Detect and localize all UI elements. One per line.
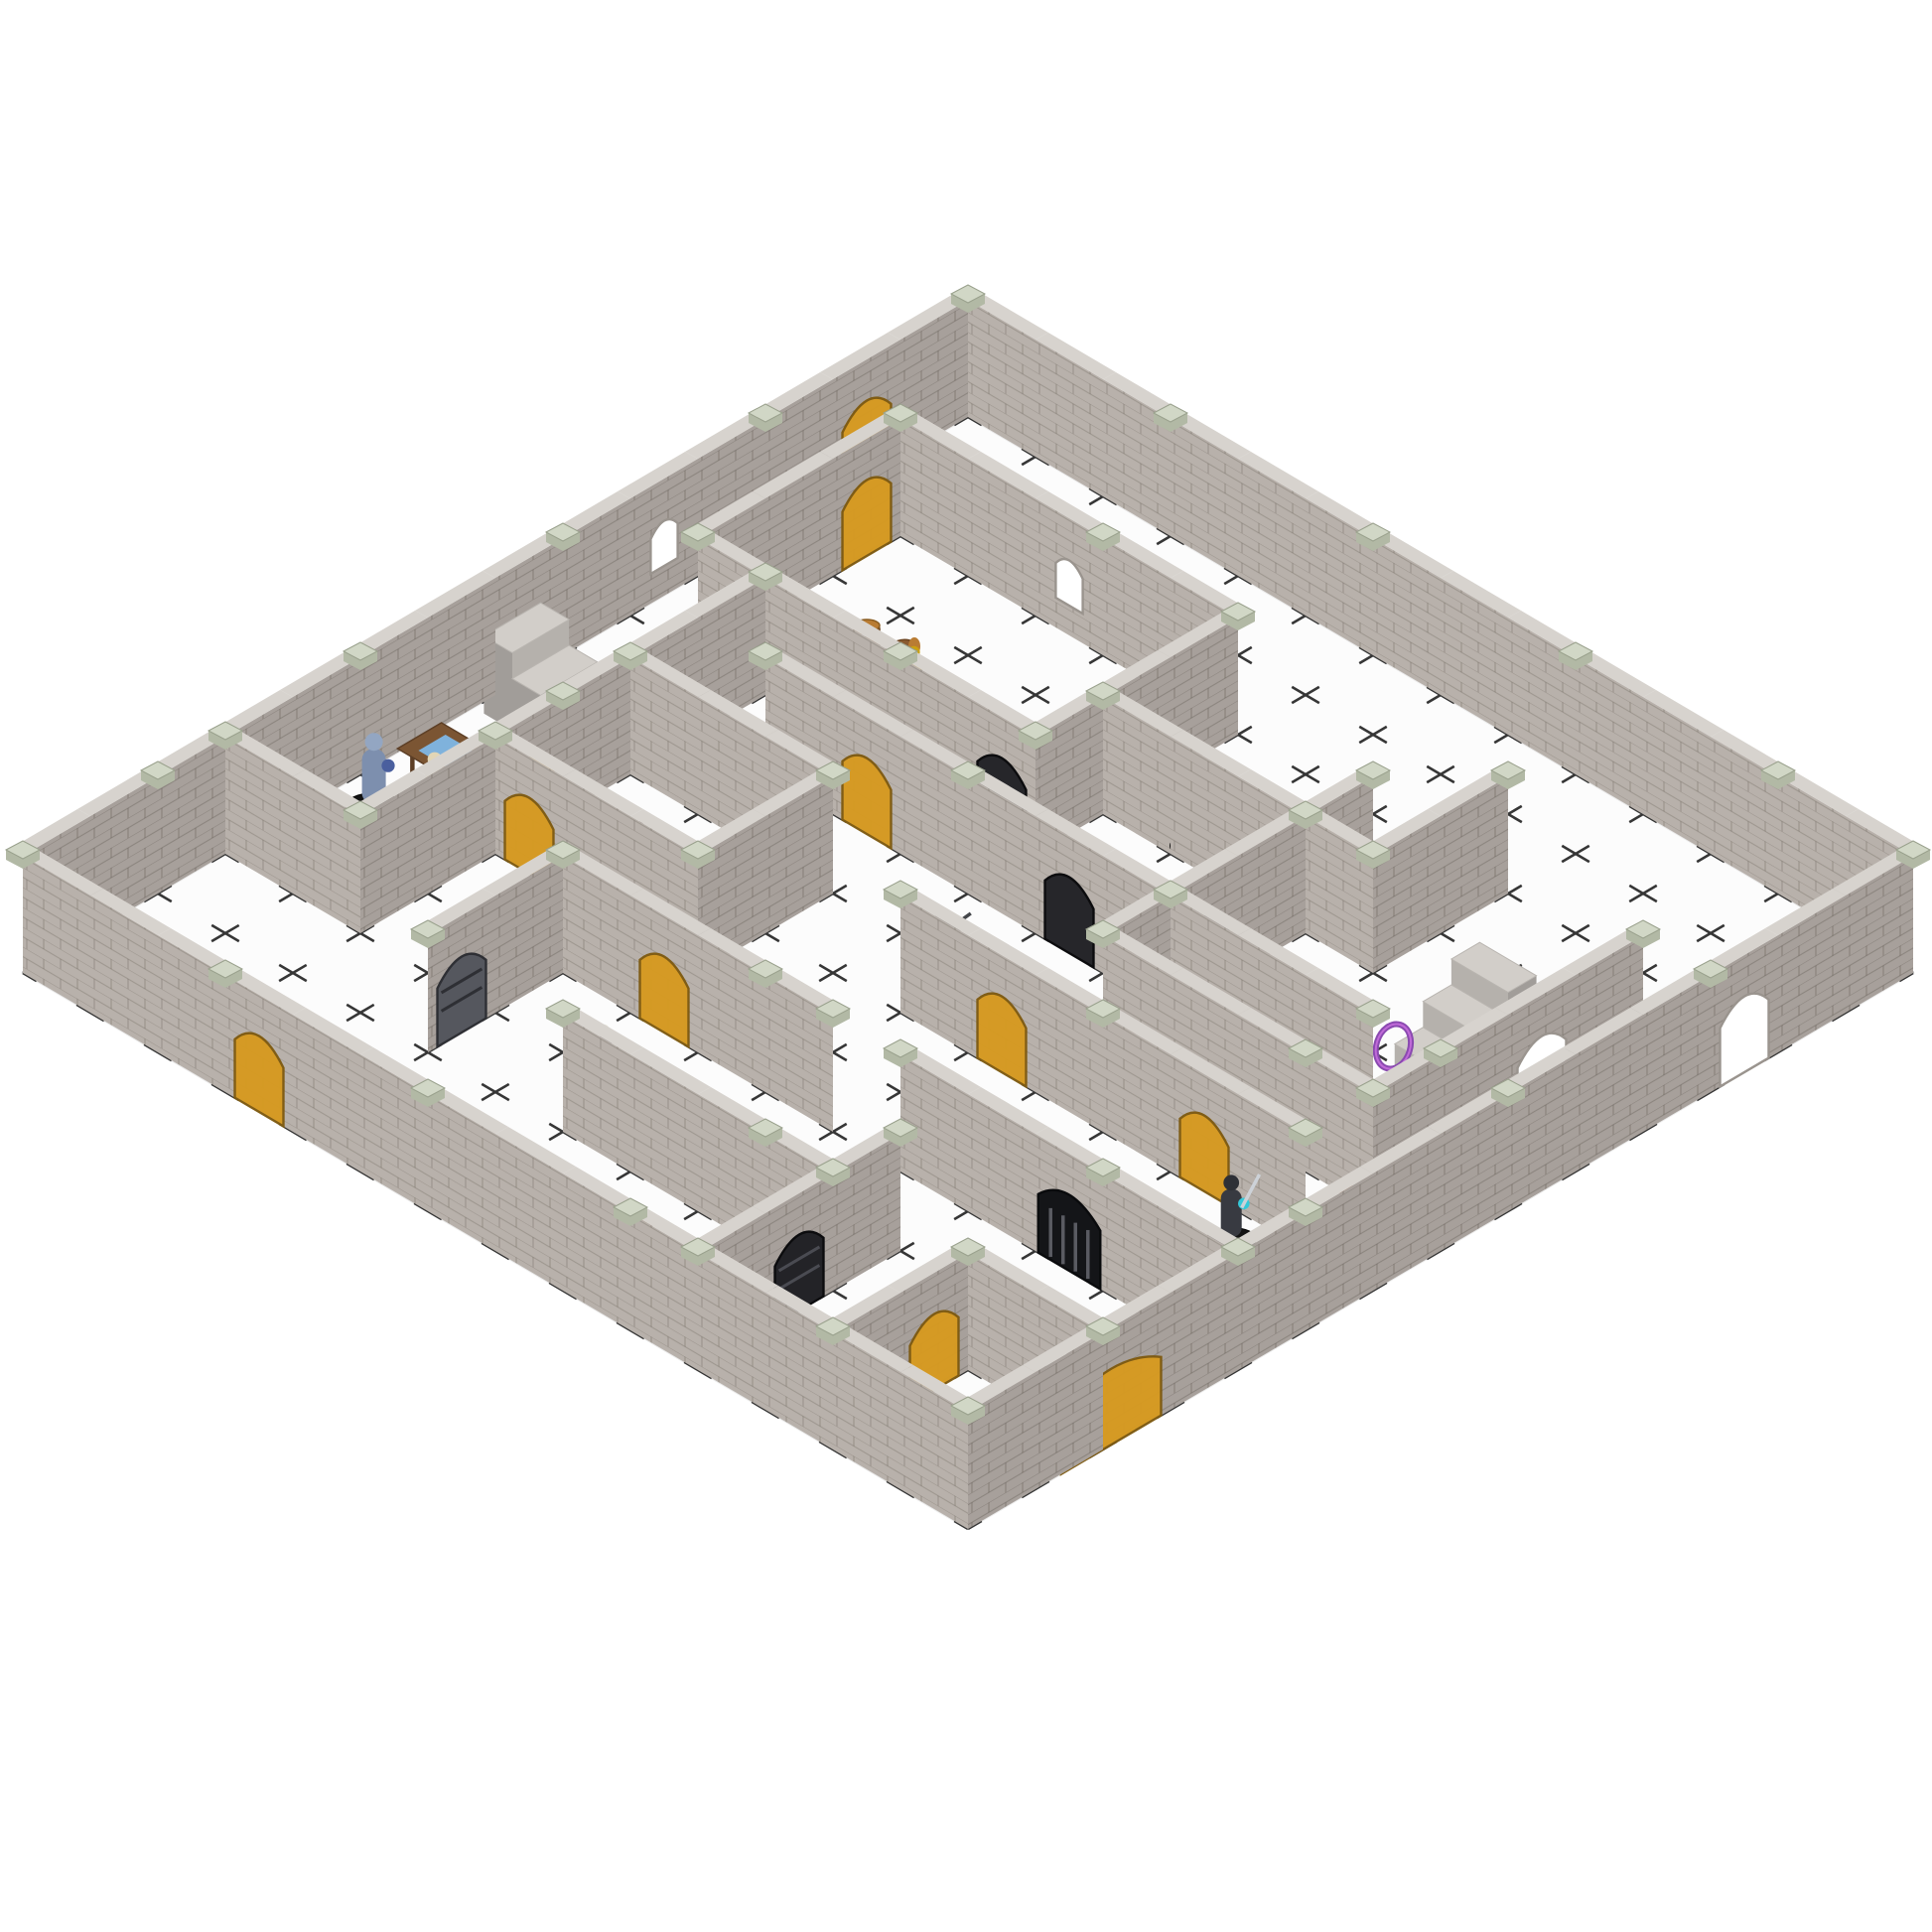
product-photo-canvas: [0, 0, 1932, 1932]
dungeon-terrain-photo: [0, 0, 1932, 1932]
